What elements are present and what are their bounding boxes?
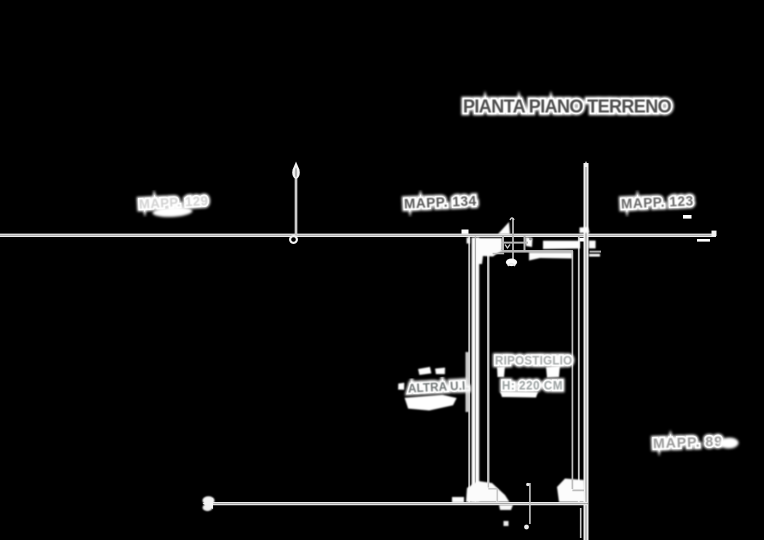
- svg-text:H: 220 CM: H: 220 CM: [502, 381, 563, 393]
- svg-text:MAPP. 89: MAPP. 89: [653, 433, 724, 451]
- svg-text:MAPP. 123: MAPP. 123: [621, 193, 694, 211]
- svg-text:ALTRA U.I.: ALTRA U.I.: [408, 380, 469, 395]
- svg-text:MAPP. 134: MAPP. 134: [404, 193, 477, 211]
- svg-text:PIANTA PIANO TERRENO: PIANTA PIANO TERRENO: [463, 97, 672, 117]
- svg-text:RIPOSTIGLIO: RIPOSTIGLIO: [495, 356, 572, 368]
